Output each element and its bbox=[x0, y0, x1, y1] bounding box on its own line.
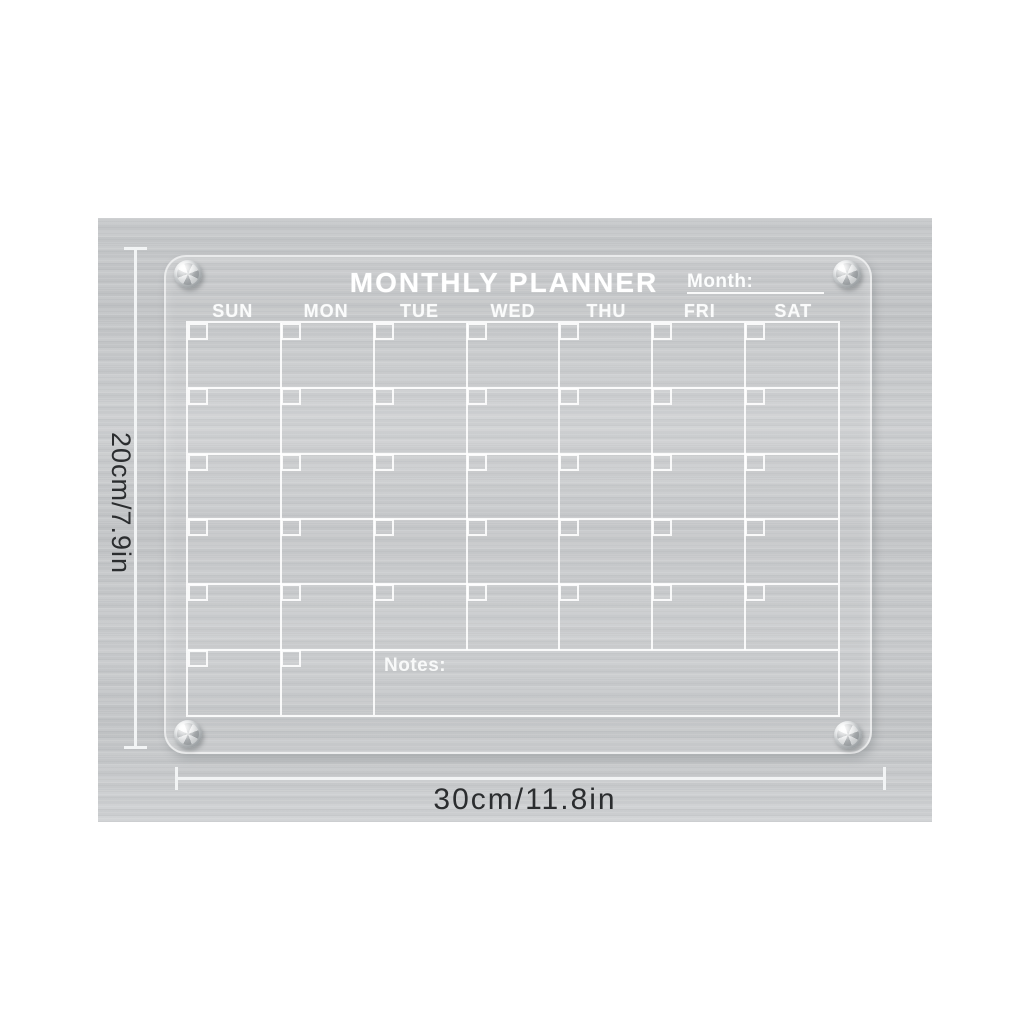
metal-surface: MONTHLY PLANNER Month: SUN MON TUE WED T… bbox=[98, 218, 932, 822]
date-number-box bbox=[467, 388, 487, 405]
date-number-box bbox=[188, 650, 208, 667]
acrylic-planner-board: MONTHLY PLANNER Month: SUN MON TUE WED T… bbox=[164, 255, 872, 754]
date-number-box bbox=[281, 454, 301, 471]
date-number-box bbox=[467, 519, 487, 536]
date-number-box bbox=[188, 388, 208, 405]
date-number-box bbox=[281, 388, 301, 405]
date-number-box bbox=[374, 454, 394, 471]
month-underline bbox=[687, 292, 824, 294]
date-number-box bbox=[652, 388, 672, 405]
date-number-box bbox=[281, 584, 301, 601]
date-number-box bbox=[745, 454, 765, 471]
day-header-thu: THU bbox=[560, 301, 653, 321]
month-label: Month: bbox=[687, 271, 753, 293]
day-header-row: SUN MON TUE WED THU FRI SAT bbox=[186, 301, 840, 321]
day-header-sat: SAT bbox=[747, 301, 840, 321]
date-number-box bbox=[745, 323, 765, 340]
date-number-box bbox=[467, 584, 487, 601]
dimension-end-tick bbox=[124, 746, 147, 749]
screw-icon bbox=[174, 720, 202, 748]
dimension-end-tick bbox=[175, 767, 178, 790]
day-header-wed: WED bbox=[466, 301, 559, 321]
date-number-box bbox=[559, 454, 579, 471]
date-number-box bbox=[652, 454, 672, 471]
day-header-sun: SUN bbox=[186, 301, 279, 321]
notes-label: Notes: bbox=[384, 655, 446, 677]
width-dimension-line bbox=[175, 777, 886, 780]
date-number-box bbox=[745, 519, 765, 536]
date-number-box bbox=[374, 584, 394, 601]
date-number-box bbox=[188, 454, 208, 471]
calendar-grid: Notes: bbox=[186, 321, 840, 717]
date-number-box bbox=[745, 388, 765, 405]
date-number-box bbox=[281, 650, 301, 667]
dimension-end-tick bbox=[124, 247, 147, 250]
date-number-box bbox=[281, 323, 301, 340]
date-number-box bbox=[374, 323, 394, 340]
width-dimension-label: 30cm/11.8in bbox=[375, 783, 675, 817]
date-number-box bbox=[559, 388, 579, 405]
date-number-box bbox=[652, 519, 672, 536]
height-dimension-label: 20cm/7.9in bbox=[100, 428, 136, 578]
dimension-end-tick bbox=[883, 767, 886, 790]
date-number-box bbox=[374, 519, 394, 536]
date-number-box bbox=[188, 323, 208, 340]
screw-icon bbox=[834, 721, 862, 749]
date-number-box bbox=[559, 323, 579, 340]
date-number-box bbox=[559, 519, 579, 536]
date-number-box bbox=[281, 519, 301, 536]
date-number-box bbox=[559, 584, 579, 601]
date-number-box bbox=[745, 584, 765, 601]
date-number-box bbox=[652, 323, 672, 340]
day-header-tue: TUE bbox=[373, 301, 466, 321]
product-photo: MONTHLY PLANNER Month: SUN MON TUE WED T… bbox=[0, 0, 1024, 1024]
date-number-box bbox=[467, 323, 487, 340]
date-number-box bbox=[652, 584, 672, 601]
date-number-box bbox=[188, 519, 208, 536]
date-number-box bbox=[374, 388, 394, 405]
day-header-fri: FRI bbox=[653, 301, 746, 321]
date-number-box bbox=[467, 454, 487, 471]
day-header-mon: MON bbox=[279, 301, 372, 321]
date-number-box bbox=[188, 584, 208, 601]
